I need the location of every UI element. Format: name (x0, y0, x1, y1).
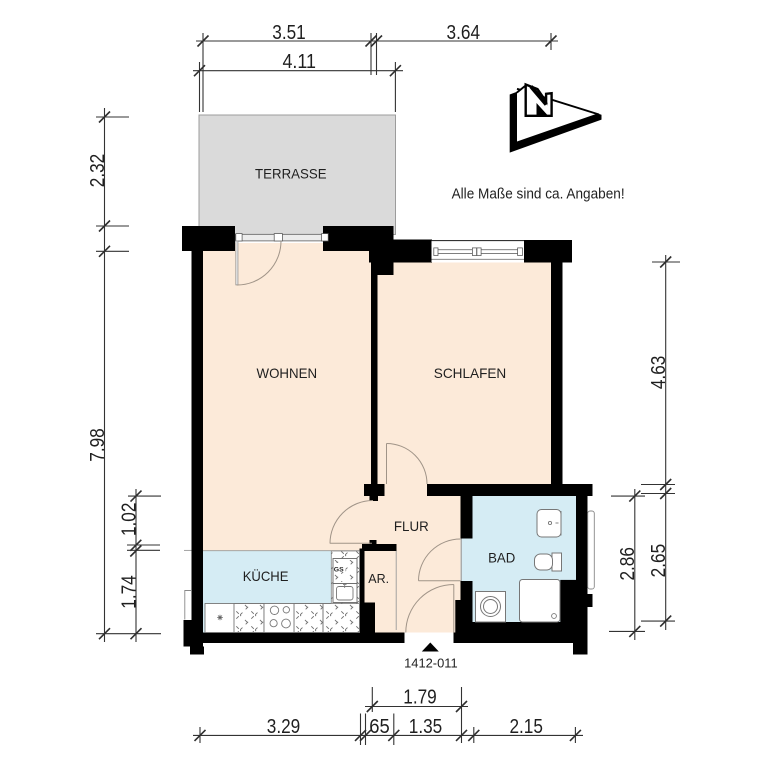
svg-text:65: 65 (369, 716, 390, 738)
svg-text:1412-011: 1412-011 (404, 656, 458, 671)
svg-text:3.64: 3.64 (447, 22, 481, 44)
svg-text:2.86: 2.86 (617, 547, 639, 581)
svg-text:TERRASSE: TERRASSE (255, 166, 327, 182)
svg-text:AR.: AR. (368, 572, 389, 586)
svg-text:2.65: 2.65 (648, 544, 670, 578)
svg-text:4.11: 4.11 (282, 51, 316, 73)
svg-text:2.32: 2.32 (87, 154, 109, 188)
svg-text:1.79: 1.79 (403, 687, 437, 709)
svg-text:WOHNEN: WOHNEN (257, 365, 318, 381)
svg-text:7.98: 7.98 (87, 428, 109, 462)
svg-text:1.02: 1.02 (118, 503, 140, 537)
svg-text:SCHLAFEN: SCHLAFEN (434, 365, 507, 381)
svg-text:BAD: BAD (488, 549, 515, 565)
svg-text:1.35: 1.35 (409, 716, 443, 738)
svg-text:2.15: 2.15 (509, 716, 543, 738)
svg-text:GS: GS (334, 566, 344, 573)
svg-text:FLUR: FLUR (394, 518, 429, 534)
svg-text:3.29: 3.29 (267, 716, 301, 738)
svg-text:4.63: 4.63 (648, 356, 670, 390)
svg-text:1.74: 1.74 (118, 575, 140, 609)
svg-text:3.51: 3.51 (272, 22, 306, 44)
svg-text:KÜCHE: KÜCHE (243, 567, 289, 584)
svg-text:Alle Maße sind ca. Angaben!: Alle Maße sind ca. Angaben! (452, 186, 625, 203)
